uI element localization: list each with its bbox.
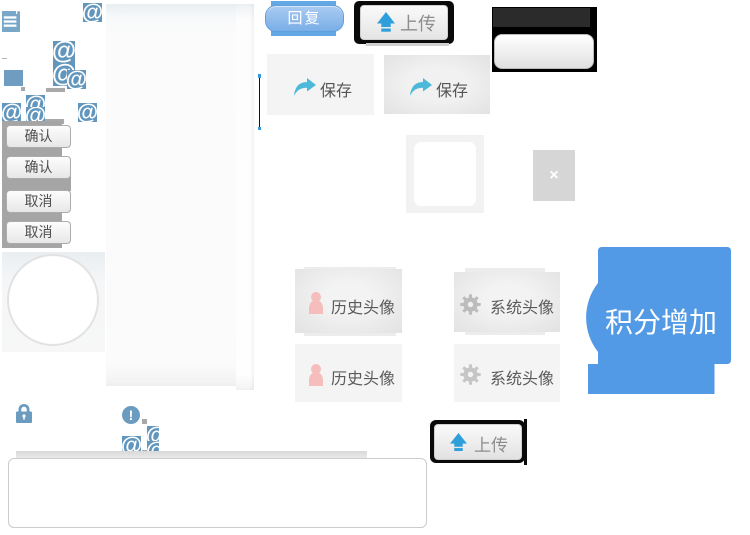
svg-text:积分增加: 积分增加: [605, 307, 717, 338]
